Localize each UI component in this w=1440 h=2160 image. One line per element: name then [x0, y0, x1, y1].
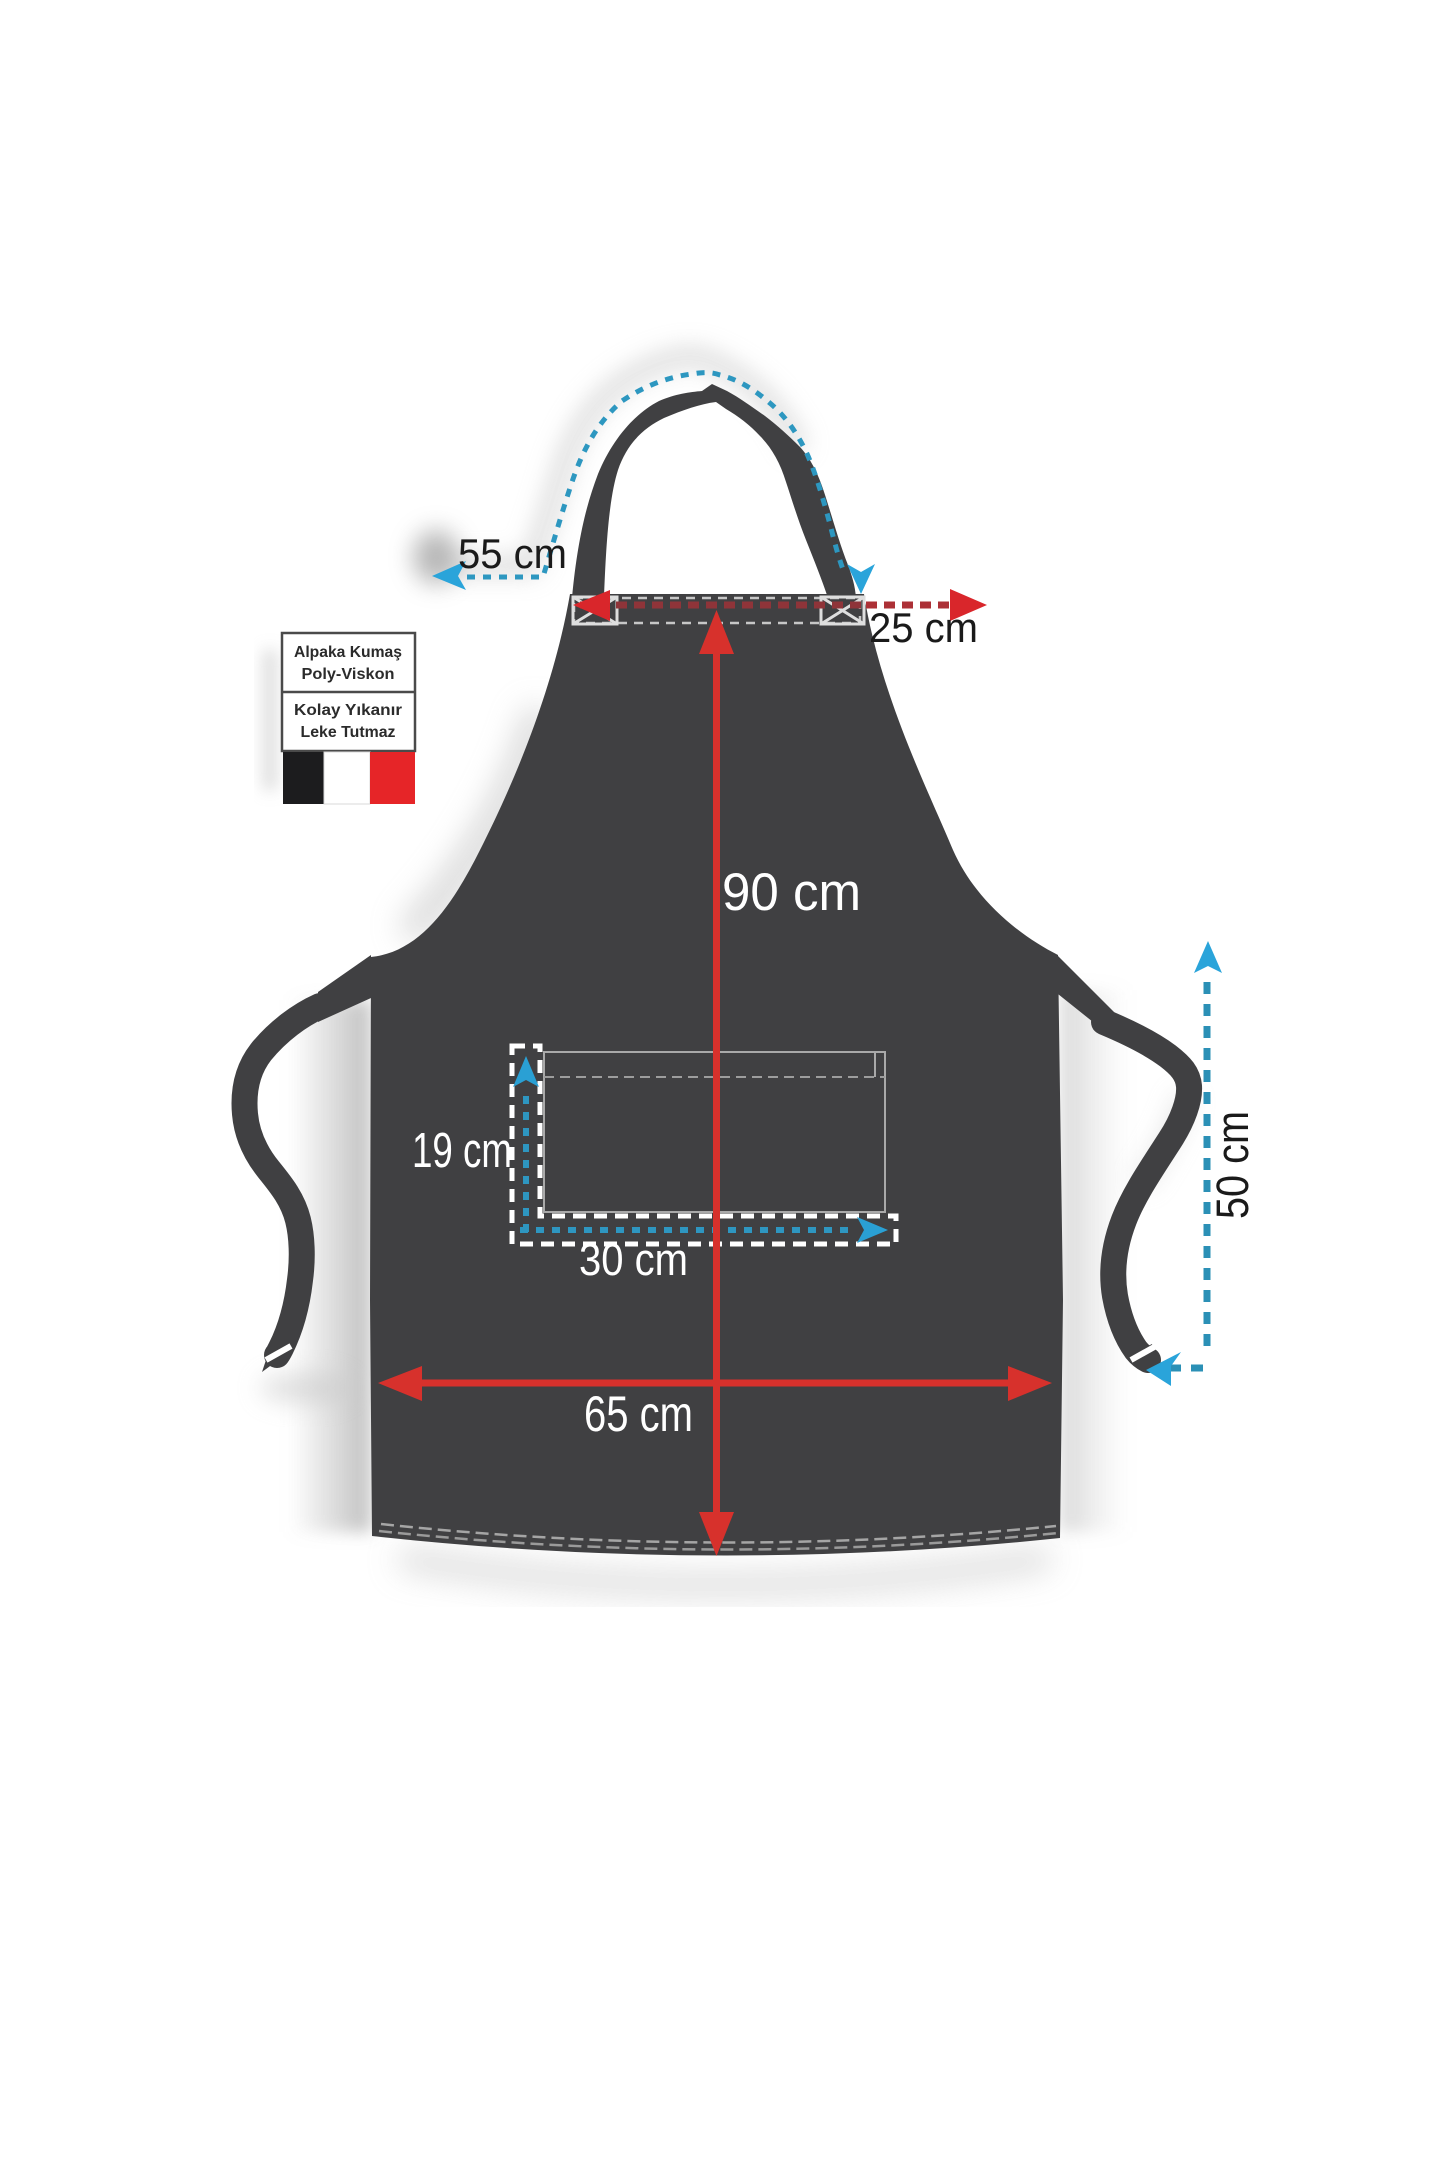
svg-text:Leke Tutmaz: Leke Tutmaz	[301, 724, 396, 741]
svg-text:65 cm: 65 cm	[584, 1386, 693, 1442]
svg-text:25 cm: 25 cm	[869, 604, 978, 651]
svg-text:19 cm: 19 cm	[412, 1124, 512, 1178]
svg-text:50 cm: 50 cm	[1207, 1111, 1258, 1219]
svg-text:Poly-Viskon: Poly-Viskon	[302, 666, 395, 683]
svg-text:Alpaka Kumaş: Alpaka Kumaş	[294, 644, 402, 661]
svg-text:30 cm: 30 cm	[579, 1234, 688, 1285]
svg-text:Kolay Yıkanır: Kolay Yıkanır	[294, 702, 402, 719]
svg-text:55 cm: 55 cm	[458, 530, 567, 577]
svg-text:90 cm: 90 cm	[722, 863, 861, 922]
